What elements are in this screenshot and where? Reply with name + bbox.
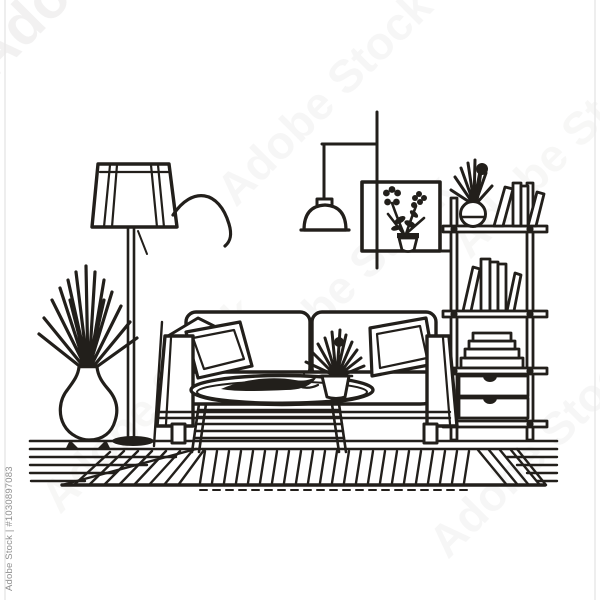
pillow-left — [186, 322, 252, 378]
sofa-leg-right — [424, 424, 437, 443]
stock-illustration: Adobe Stock Adobe Stock Adobe Stock Adob… — [0, 0, 600, 600]
sofa-leg-left — [172, 424, 185, 443]
table-plant-bud — [334, 337, 344, 347]
bookshelf-drawers — [459, 376, 528, 418]
lamp-base — [112, 436, 154, 446]
table-plant-pot — [322, 376, 349, 399]
watermark-side-label: Adobe Stock | #1030897083 — [4, 466, 15, 591]
frame-flower-pot — [397, 233, 419, 252]
stock-image-canvas: Adobe Stock Adobe Stock Adobe Stock Adob… — [0, 0, 600, 600]
pendant-shade — [304, 205, 346, 230]
